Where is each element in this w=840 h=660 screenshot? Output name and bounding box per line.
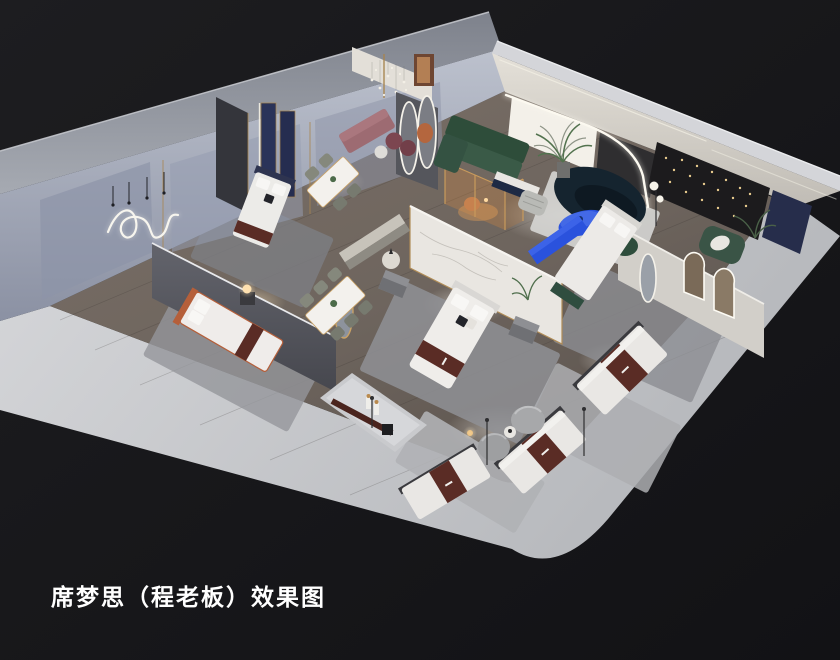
lamp-in-box: [484, 198, 488, 202]
glow-orb-lamp: [238, 280, 256, 305]
doorway-light: [417, 57, 430, 83]
arch-mirror: [714, 269, 734, 318]
plum-chair: [386, 133, 403, 150]
oval-floor-mirror: [640, 254, 656, 302]
interior-render-svg: [0, 0, 840, 660]
rust-armchair: [417, 123, 433, 143]
dark-wardrobe-panel: [216, 97, 248, 213]
round-side-table: [375, 146, 388, 159]
render-canvas: 席梦思（程老板）效果图: [0, 0, 840, 660]
black-cube-stool: [382, 424, 393, 435]
plum-chair: [400, 140, 416, 156]
caption: 席梦思（程老板）效果图: [51, 585, 326, 613]
armchair-in-box: [464, 197, 480, 211]
arch-mirror: [684, 253, 704, 300]
